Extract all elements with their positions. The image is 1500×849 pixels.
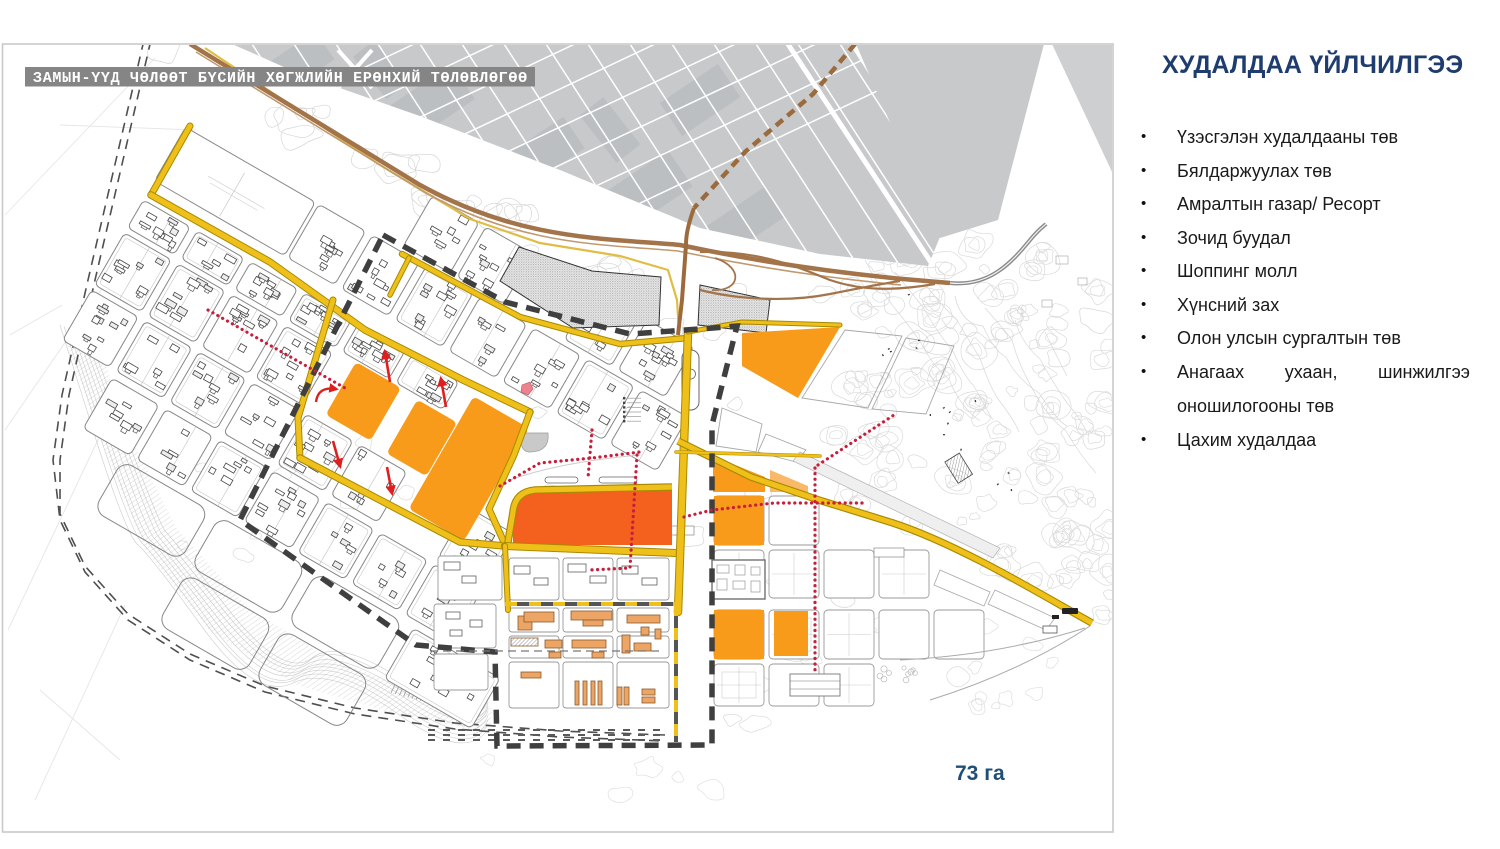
svg-text:ЗАМЫН-ҮҮД ЧӨЛӨӨТ БҮСИЙН ХӨГЖЛИ: ЗАМЫН-ҮҮД ЧӨЛӨӨТ БҮСИЙН ХӨГЖЛИЙН ЕРӨНХИЙ…	[33, 69, 528, 87]
svg-text:73 га: 73 га	[955, 762, 1005, 785]
